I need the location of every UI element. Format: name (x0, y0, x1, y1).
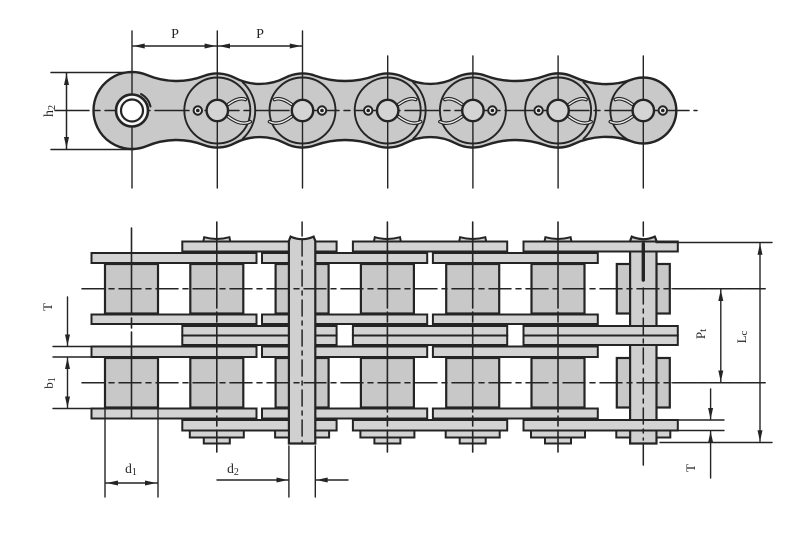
svg-text:d1: d1 (125, 461, 137, 478)
svg-text:P: P (171, 27, 179, 42)
svg-text:h2: h2 (42, 105, 58, 117)
svg-text:d2: d2 (227, 461, 239, 478)
svg-text:P: P (256, 27, 264, 42)
svg-text:Pt: Pt (693, 329, 709, 339)
svg-text:Lc: Lc (734, 330, 750, 343)
svg-text:T: T (683, 464, 698, 472)
svg-text:b1: b1 (41, 377, 58, 389)
svg-text:T: T (40, 303, 55, 311)
